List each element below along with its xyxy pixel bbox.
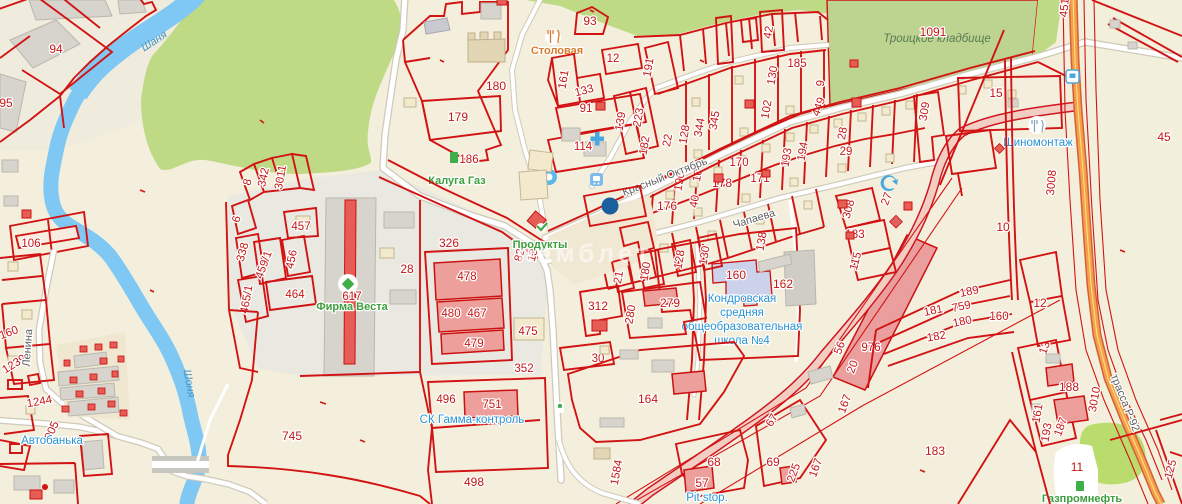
svg-text:279: 279 (660, 296, 680, 310)
svg-text:186: 186 (459, 154, 478, 166)
svg-text:42: 42 (762, 25, 776, 40)
svg-text:12: 12 (607, 53, 620, 65)
svg-text:106: 106 (21, 238, 40, 250)
svg-text:160: 160 (989, 311, 1008, 323)
svg-text:478: 478 (457, 271, 476, 283)
svg-text:69: 69 (766, 455, 780, 469)
svg-text:95: 95 (0, 96, 13, 110)
svg-text:451: 451 (1058, 0, 1072, 18)
svg-text:15: 15 (989, 86, 1003, 100)
svg-text:Pit stop.: Pit stop. (686, 492, 728, 504)
svg-text:170: 170 (729, 157, 748, 169)
svg-text:Фирма Веста: Фирма Веста (316, 301, 388, 313)
svg-text:176: 176 (657, 199, 677, 213)
svg-text:180: 180 (486, 79, 506, 93)
svg-text:Шиномонтаж: Шиномонтаж (1003, 137, 1073, 149)
svg-text:40: 40 (688, 194, 702, 209)
svg-text:Столовая: Столовая (531, 45, 583, 57)
svg-text:160: 160 (726, 268, 746, 282)
svg-text:114: 114 (574, 141, 593, 153)
svg-text:Кондровская: Кондровская (708, 293, 777, 305)
svg-text:467: 467 (467, 308, 486, 320)
svg-text:93: 93 (583, 14, 597, 28)
svg-text:школа №4: школа №4 (714, 335, 770, 347)
svg-text:28: 28 (836, 126, 850, 141)
svg-text:Газпромнефть: Газпромнефть (1042, 493, 1123, 504)
svg-text:188: 188 (1059, 380, 1079, 394)
svg-text:22: 22 (661, 133, 675, 148)
svg-text:164: 164 (638, 392, 658, 406)
svg-text:94: 94 (49, 42, 63, 56)
svg-text:183: 183 (925, 444, 945, 458)
svg-text:1091: 1091 (920, 25, 947, 39)
svg-text:185: 185 (787, 58, 806, 70)
svg-text:3008: 3008 (1045, 169, 1059, 196)
svg-text:496: 496 (436, 394, 455, 406)
svg-text:21: 21 (612, 270, 626, 285)
svg-text:11: 11 (1071, 460, 1084, 474)
svg-text:средняя: средняя (720, 307, 764, 319)
svg-text:162: 162 (773, 277, 793, 291)
svg-text:498: 498 (464, 475, 484, 489)
svg-text:480: 480 (441, 308, 460, 320)
svg-text:179: 179 (448, 110, 468, 124)
svg-text:общеобразовательная: общеобразовательная (682, 321, 803, 333)
svg-text:12: 12 (1033, 296, 1047, 310)
svg-text:457: 457 (291, 221, 310, 233)
svg-text:479: 479 (464, 338, 483, 350)
svg-text:29: 29 (840, 146, 853, 158)
svg-text:10: 10 (996, 220, 1010, 234)
svg-text:57: 57 (695, 476, 709, 490)
svg-text:68: 68 (707, 455, 721, 469)
svg-text:475: 475 (518, 326, 537, 338)
svg-text:976: 976 (861, 342, 880, 354)
svg-text:45: 45 (1157, 130, 1171, 144)
svg-text:464: 464 (285, 289, 305, 301)
svg-text:352: 352 (514, 363, 533, 375)
svg-text:312: 312 (588, 299, 608, 313)
svg-text:326: 326 (439, 236, 459, 250)
svg-text:памблет: памблет (517, 238, 653, 268)
svg-text:91: 91 (580, 103, 593, 115)
svg-text:745: 745 (282, 429, 302, 443)
svg-text:СК Гамма-контроль: СК Гамма-контроль (420, 414, 525, 426)
svg-text:Автобанька: Автобанька (21, 435, 83, 447)
svg-text:751: 751 (482, 399, 501, 411)
svg-text:28: 28 (400, 262, 414, 276)
